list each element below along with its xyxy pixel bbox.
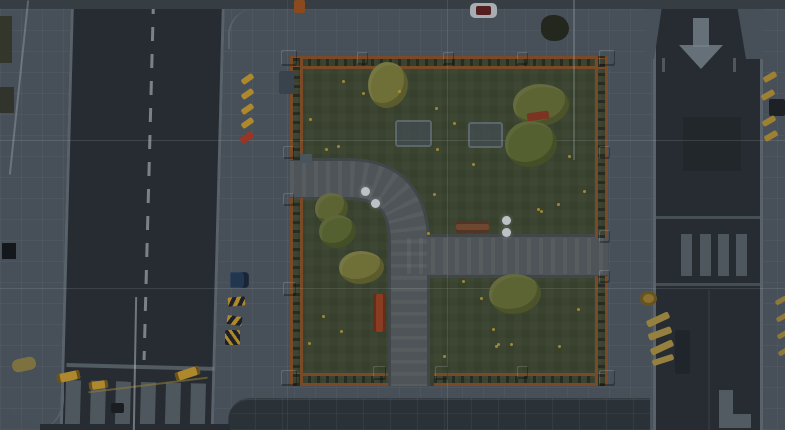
vignette-overlay: [0, 0, 785, 430]
game-viewport[interactable]: [0, 0, 785, 430]
